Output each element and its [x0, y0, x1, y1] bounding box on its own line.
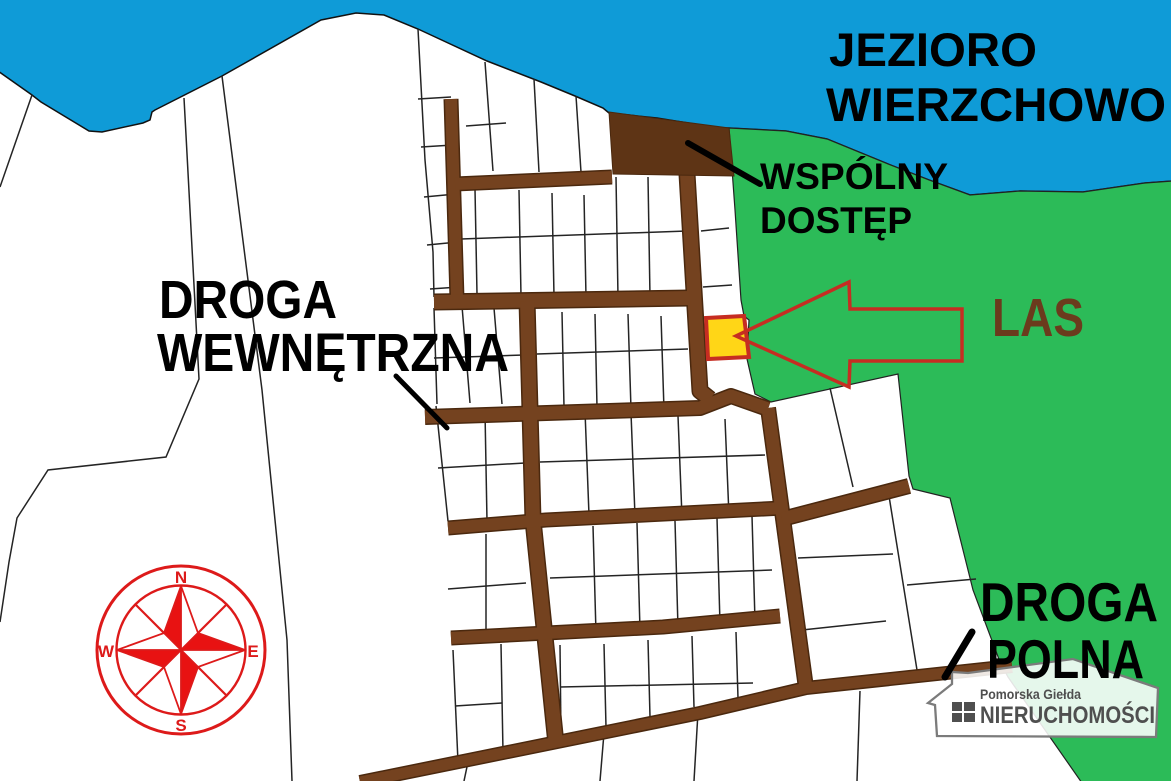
svg-text:POLNA: POLNA — [987, 628, 1144, 690]
svg-text:WIERZCHOWO: WIERZCHOWO — [826, 78, 1166, 131]
svg-text:E: E — [247, 642, 258, 661]
svg-text:DROGA: DROGA — [980, 571, 1158, 633]
svg-text:NIERUCHOMOŚCI: NIERUCHOMOŚCI — [980, 701, 1155, 729]
svg-text:LAS: LAS — [992, 288, 1084, 348]
svg-text:N: N — [175, 568, 187, 587]
svg-text:JEZIORO: JEZIORO — [829, 23, 1037, 76]
svg-text:W: W — [98, 642, 115, 661]
svg-text:S: S — [175, 716, 186, 735]
svg-text:DROGA: DROGA — [159, 270, 337, 330]
svg-text:WSPÓLNY: WSPÓLNY — [760, 155, 948, 197]
svg-text:DOSTĘP: DOSTĘP — [760, 200, 912, 241]
svg-text:WEWNĘTRZNA: WEWNĘTRZNA — [157, 323, 509, 383]
